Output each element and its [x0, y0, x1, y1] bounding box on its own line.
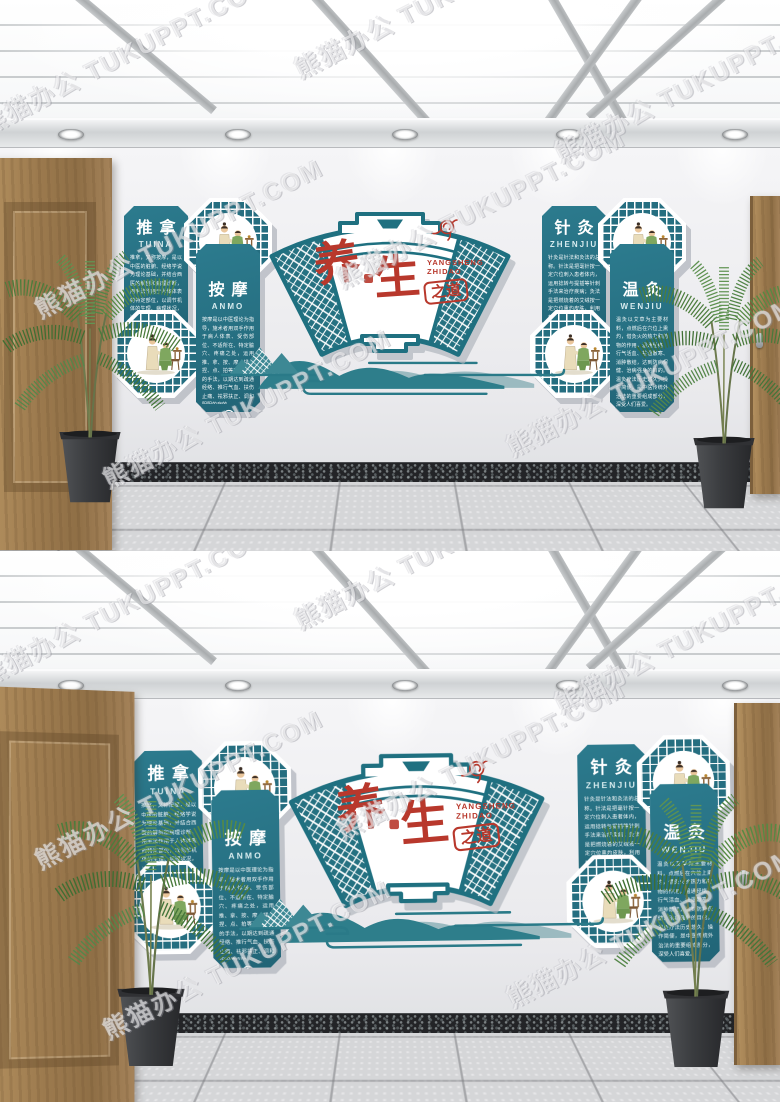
downlight-icon — [722, 129, 748, 140]
seal-stamp-icon — [364, 274, 373, 283]
mockup-stage: 养 生 YANGSHENG ZHIDAO 之道 推拿 TUINA 推拿，又称按摩… — [0, 0, 780, 1102]
showroom-scene: 养 生 YANGSHENG ZHIDAO 之道 推拿 TUINA 推拿，又称按摩… — [0, 0, 780, 551]
seal-stamp-icon — [389, 820, 399, 830]
panel-tuina-title-cn: 推拿 — [134, 759, 202, 785]
cloud-ornament-icon — [213, 408, 243, 412]
fan-text-group: 养 生 YANGSHENG ZHIDAO 之道 — [278, 739, 556, 912]
downlight-icon — [392, 680, 418, 691]
ceiling-glow — [0, 0, 780, 118]
fan-title-char2: 生 — [398, 796, 451, 849]
downlight-icon — [556, 680, 582, 691]
downlight-icon — [556, 129, 582, 140]
ceiling — [0, 0, 780, 118]
panel-tuina-title-en: TUINA — [124, 240, 188, 249]
fan-subtitle-en-line2: ZHIDAO — [456, 811, 516, 822]
fan-subtitle-box: 之道 — [423, 278, 469, 306]
panel-zhenjiu-title-cn: 针灸 — [577, 752, 645, 778]
potted-palm-plant-left — [0, 252, 180, 504]
panel-anmo-title-en: ANMO — [196, 302, 260, 311]
potted-palm-plant-right — [598, 795, 780, 1069]
ceiling — [0, 551, 780, 669]
downlight-icon — [722, 680, 748, 691]
fan-centerpiece: 养 生 YANGSHENG ZHIDAO 之道 — [260, 200, 520, 360]
downlight-icon — [225, 680, 251, 691]
fan-subtitle-en: YANGSHENG ZHIDAO — [427, 258, 484, 277]
panel-zhenjiu-title-en: ZHENJIU — [542, 240, 606, 249]
potted-palm-plant-left — [52, 791, 250, 1068]
fan-text-group: 养 生 YANGSHENG ZHIDAO 之道 — [260, 200, 520, 360]
fan-title-char1: 养 — [333, 781, 389, 837]
ceiling-glow — [0, 551, 780, 669]
downlight-icon — [225, 129, 251, 140]
showroom-scene-angled: 养 生 YANGSHENG ZHIDAO 之道 推拿 TUINA 推拿，又称按摩… — [0, 551, 780, 1102]
fan-title-char2: 生 — [372, 252, 421, 301]
fan-centerpiece: 养 生 YANGSHENG ZHIDAO 之道 — [278, 739, 556, 912]
peony-flower-icon — [461, 759, 493, 787]
panel-zhenjiu-title-en: ZHENJIU — [578, 780, 646, 790]
fan-title-char1: 养 — [311, 237, 363, 289]
fan-subtitle-en-line1: YANGSHENG — [456, 801, 516, 812]
downlight-icon — [58, 129, 84, 140]
panel-anmo-title-cn: 按摩 — [196, 276, 260, 300]
fan-subtitle-box: 之道 — [452, 822, 501, 852]
fan-subtitle-en-line1: YANGSHENG — [427, 258, 484, 267]
culture-wall-art: 养 生 YANGSHENG ZHIDAO 之道 推拿 TUINA 推拿，又称按摩… — [118, 198, 683, 413]
fan-subtitle-en-line2: ZHIDAO — [427, 267, 484, 276]
panel-zhenjiu-title-cn: 针灸 — [542, 214, 606, 238]
fan-subtitle-en: YANGSHENG ZHIDAO — [456, 801, 516, 822]
potted-palm-plant-right — [634, 258, 780, 510]
ceiling-ledge — [0, 118, 780, 148]
peony-flower-icon — [432, 218, 462, 244]
panel-tuina-title-cn: 推拿 — [124, 214, 188, 238]
downlight-icon — [392, 129, 418, 140]
